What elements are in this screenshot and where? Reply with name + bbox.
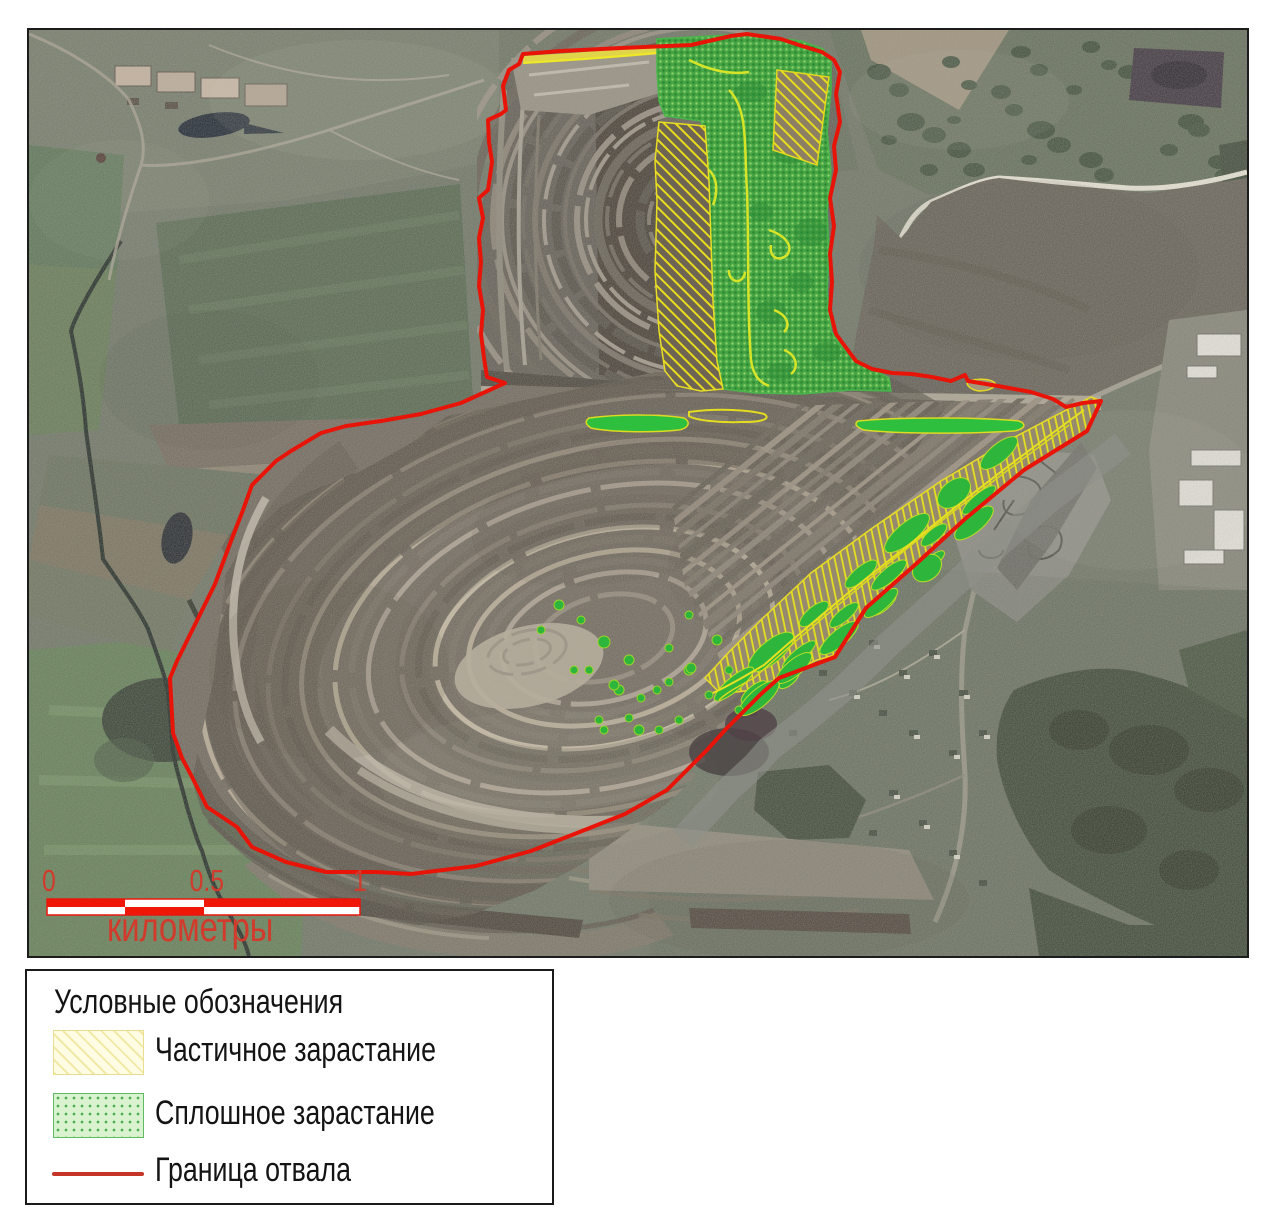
svg-text:0.5: 0.5: [190, 863, 224, 897]
svg-text:1: 1: [353, 863, 367, 897]
svg-text:0: 0: [42, 863, 56, 897]
svg-text:километры: километры: [107, 903, 273, 949]
